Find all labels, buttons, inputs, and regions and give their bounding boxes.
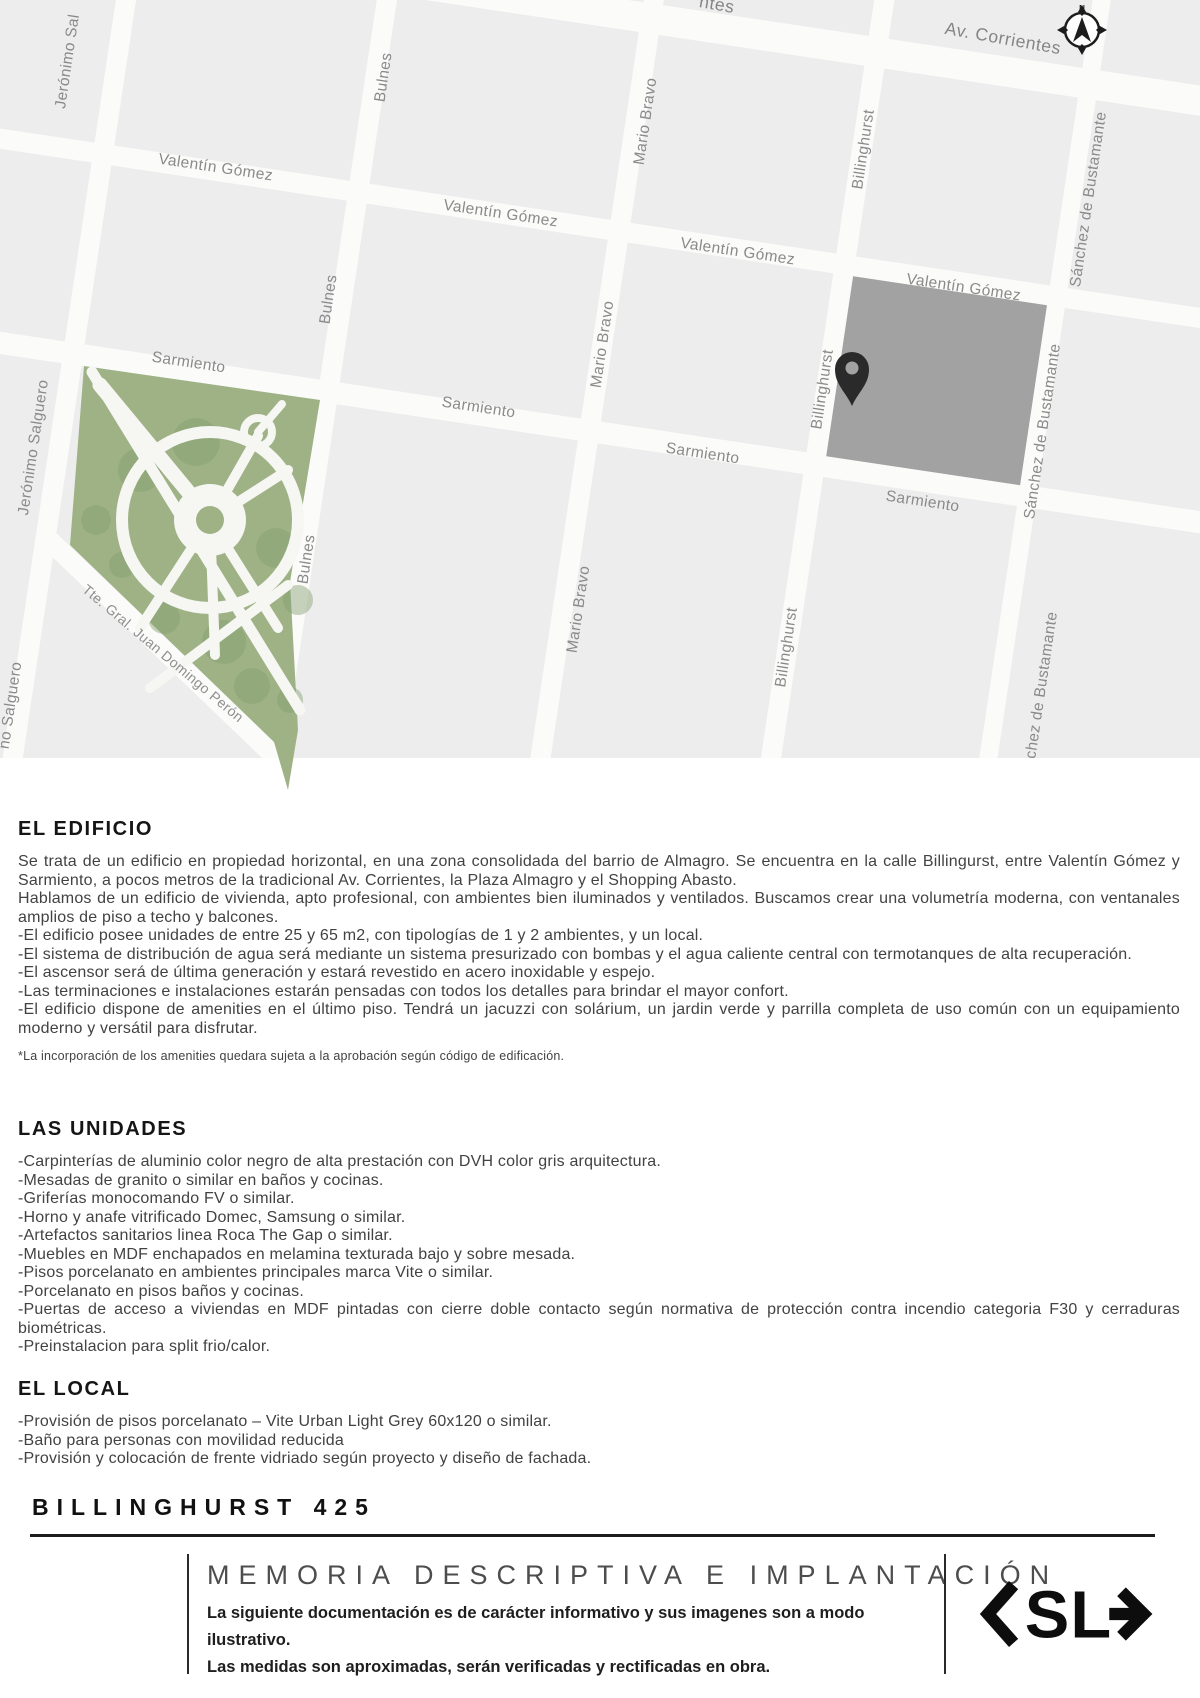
bullet-line: -Puertas de acceso a viviendas en MDF pi… [18, 1301, 1180, 1338]
location-map: Jerónimo Sal Bulnes Mario Bravo Billingh… [0, 0, 1200, 800]
footer-right-divider [944, 1554, 946, 1674]
bullet-line: -Griferías monocomando FV o similar. [18, 1190, 1180, 1209]
footer-left-divider [187, 1554, 189, 1674]
bullet-line: -Carpinterías de aluminio color negro de… [18, 1153, 1180, 1172]
ksl-logo-text: SL [1025, 1578, 1113, 1650]
title-rule [30, 1534, 1155, 1537]
bullet-line: -El edificio dispone de amenities en el … [18, 1001, 1180, 1038]
bullet-line: -El sistema de distribución de agua será… [18, 946, 1180, 965]
bullet-line: -Artefactos sanitarios linea Roca The Ga… [18, 1227, 1180, 1246]
bullet-line: -Mesadas de granito o similar en baños y… [18, 1172, 1180, 1191]
section-title: EL LOCAL [18, 1378, 1180, 1401]
section-el-edificio: EL EDIFICIO Se trata de un edificio en p… [18, 818, 1180, 1066]
bullet-line: -Muebles en MDF enchapados en melamina t… [18, 1246, 1180, 1265]
project-title: BILLINGHURST 425 [32, 1494, 376, 1521]
document-notes: La siguiente documentación es de carácte… [207, 1600, 952, 1682]
bullet-line: -Pisos porcelanato en ambientes principa… [18, 1264, 1180, 1283]
section-title: EL EDIFICIO [18, 818, 1180, 841]
bullet-line: -Preinstalacion para split frio/calor. [18, 1338, 1180, 1357]
paragraph: Se trata de un edificio en propiedad hor… [18, 853, 1180, 890]
memoria-descriptiva-page: Jerónimo Sal Bulnes Mario Bravo Billingh… [0, 0, 1200, 1698]
document-title: MEMORIA DESCRIPTIVA E IMPLANTACIÓN [207, 1560, 1058, 1591]
section-las-unidades: LAS UNIDADES -Carpinterías de aluminio c… [18, 1118, 1180, 1357]
note-line: La siguiente documentación es de carácte… [207, 1600, 952, 1654]
bullet-line: -El edificio posee unidades de entre 25 … [18, 927, 1180, 946]
bullet-line: -Porcelanato en pisos baños y cocinas. [18, 1283, 1180, 1302]
bullet-line: -El ascensor será de última generación y… [18, 964, 1180, 983]
note-line: Las medidas son aproximadas, serán verif… [207, 1654, 952, 1681]
bullet-line: -Horno y anafe vitrificado Domec, Samsun… [18, 1209, 1180, 1228]
footer: MEMORIA DESCRIPTIVA E IMPLANTACIÓN La si… [0, 1552, 1200, 1678]
ksl-logo: SL [978, 1578, 1156, 1650]
paragraph: Hablamos de un edificio de vivienda, apt… [18, 890, 1180, 927]
section-title: LAS UNIDADES [18, 1118, 1180, 1141]
compass-north-label: N [1079, 4, 1085, 13]
bullet-line: -Provisión y colocación de frente vidria… [18, 1450, 1180, 1469]
bullet-line: -Provisión de pisos porcelanato – Vite U… [18, 1413, 1180, 1432]
bullet-line: -Las terminaciones e instalaciones estar… [18, 983, 1180, 1002]
map-canvas: Jerónimo Sal Bulnes Mario Bravo Billingh… [0, 0, 1200, 800]
section-el-local: EL LOCAL -Provisión de pisos porcelanato… [18, 1378, 1180, 1469]
amenities-footnote: *La incorporación de los amenities queda… [18, 1047, 1180, 1066]
bullet-line: -Baño para personas con movilidad reduci… [18, 1432, 1180, 1451]
